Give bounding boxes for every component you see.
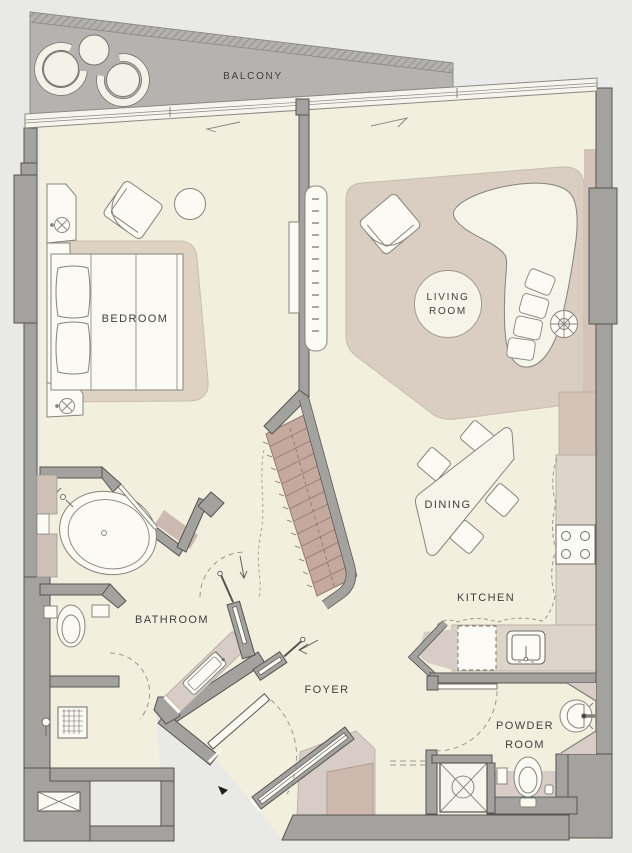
svg-text:LIVING: LIVING bbox=[427, 292, 470, 303]
svg-text:ROOM: ROOM bbox=[429, 306, 467, 317]
svg-text:BEDROOM: BEDROOM bbox=[102, 313, 169, 325]
svg-text:BALCONY: BALCONY bbox=[223, 71, 283, 82]
svg-text:FOYER: FOYER bbox=[305, 684, 350, 696]
svg-text:ROOM: ROOM bbox=[505, 739, 545, 751]
svg-text:BATHROOM: BATHROOM bbox=[135, 614, 209, 626]
svg-text:POWDER: POWDER bbox=[496, 720, 554, 732]
svg-text:DINING: DINING bbox=[425, 499, 472, 511]
svg-text:KITCHEN: KITCHEN bbox=[457, 592, 515, 604]
